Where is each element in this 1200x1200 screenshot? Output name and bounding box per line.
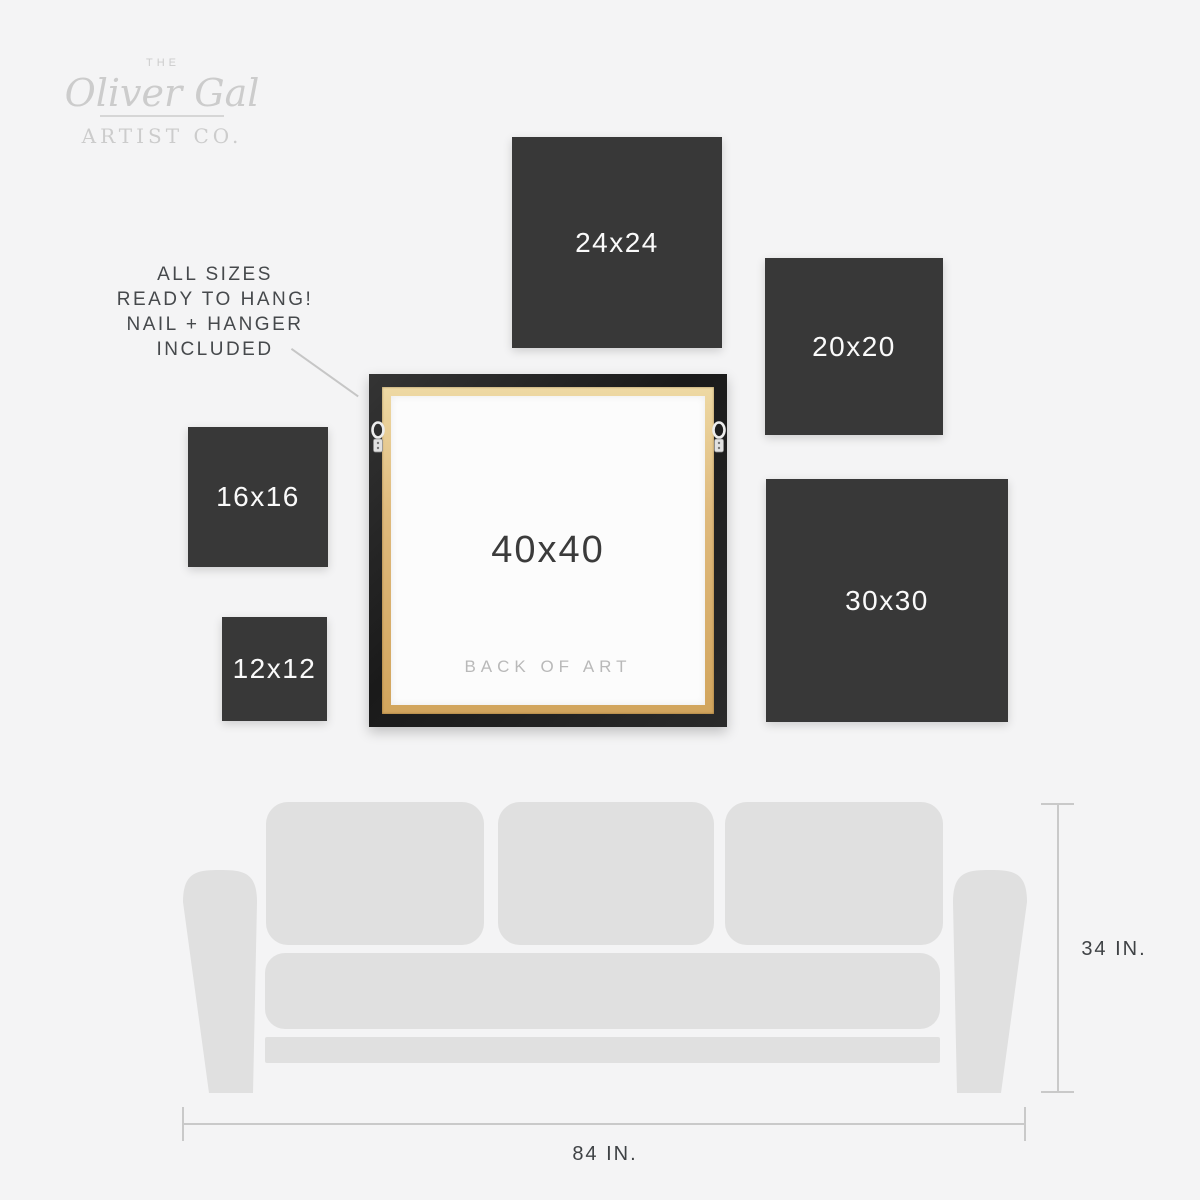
size-label-40x40: 40x40 <box>491 529 605 572</box>
ready-to-hang-note: ALL SIZES READY TO HANG! NAIL + HANGER I… <box>95 262 335 362</box>
width-dimension-tick <box>182 1107 184 1141</box>
size-square-30x30: 30x30 <box>766 479 1008 722</box>
size-label-24x24: 24x24 <box>575 227 659 259</box>
size-square-20x20: 20x20 <box>765 258 943 435</box>
sofa-back-cushion <box>498 802 714 945</box>
height-dimension-line <box>1057 804 1059 1092</box>
note-line-3: NAIL + HANGER <box>95 312 335 337</box>
size-label-16x16: 16x16 <box>216 481 300 513</box>
sofa-illustration <box>180 795 1030 1095</box>
size-square-16x16: 16x16 <box>188 427 328 567</box>
size-square-12x12: 12x12 <box>222 617 327 721</box>
width-dimension-line <box>183 1123 1025 1125</box>
height-dimension-tick <box>1041 1091 1074 1093</box>
logo-the: THE <box>146 57 180 69</box>
sofa-width-label: 84 IN. <box>554 1143 656 1166</box>
sofa-height-label: 34 IN. <box>1072 938 1156 961</box>
width-dimension-tick <box>1024 1107 1026 1141</box>
size-label-30x30: 30x30 <box>845 585 929 617</box>
brand-logo: THE Oliver Gal ARTIST CO. <box>60 40 270 152</box>
back-of-art-caption: BACK OF ART <box>391 657 705 677</box>
sofa-arm-right <box>953 870 1027 1093</box>
sofa-back-cushion <box>266 802 484 945</box>
note-line-4: INCLUDED <box>95 337 335 362</box>
sofa-seat-cushion <box>265 953 940 1029</box>
note-line-2: READY TO HANG! <box>95 287 335 312</box>
logo-subtitle: ARTIST CO. <box>81 124 243 148</box>
d-ring-hanger-icon <box>370 420 386 458</box>
stretcher-bars: 40x40 BACK OF ART <box>382 387 714 714</box>
size-label-20x20: 20x20 <box>812 331 896 363</box>
canvas-back: 40x40 BACK OF ART <box>391 396 705 705</box>
sofa-arm-left <box>183 870 257 1093</box>
d-ring-hanger-icon <box>711 420 727 458</box>
framed-canvas-back-40x40: 40x40 BACK OF ART <box>369 374 727 727</box>
size-guide-page: THE Oliver Gal ARTIST CO. ALL SIZES READ… <box>0 0 1200 1200</box>
sofa-base <box>265 1037 940 1063</box>
size-label-12x12: 12x12 <box>233 653 317 685</box>
logo-script: Oliver Gal <box>65 71 260 115</box>
note-line-1: ALL SIZES <box>95 262 335 287</box>
height-dimension-tick <box>1041 803 1074 805</box>
sofa-back-cushion <box>725 802 943 945</box>
size-square-24x24: 24x24 <box>512 137 722 348</box>
